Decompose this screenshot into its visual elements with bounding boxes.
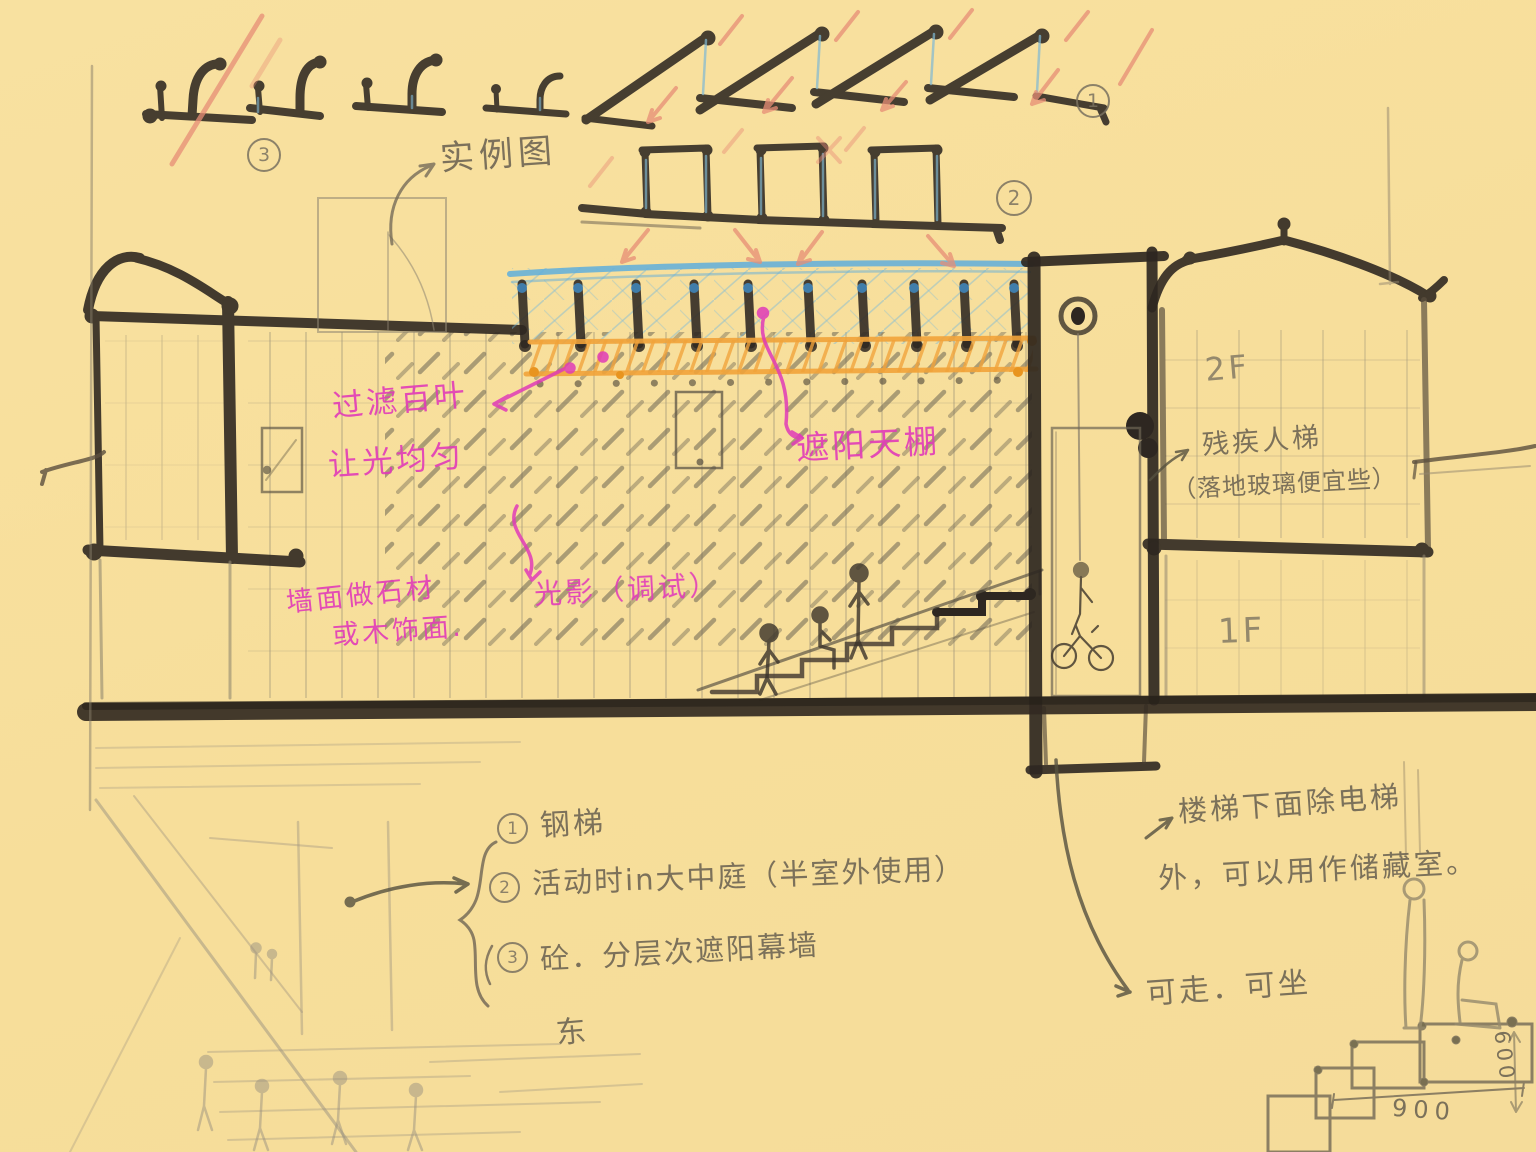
example-note-arrow: [391, 164, 434, 244]
clerestory-roof-sketch: [582, 143, 1002, 240]
pulley-icon: [1061, 299, 1095, 560]
sawtooth-roof-sketch: [585, 25, 1106, 126]
accessible-lift-note-line1: 残疾人梯: [1201, 424, 1323, 459]
list-marker-1: 1: [497, 813, 528, 844]
list-marker-2: 2: [489, 872, 520, 903]
detail-marker-3: 3: [247, 138, 281, 172]
floor-label-2f: 2F: [1204, 350, 1251, 386]
corner-figure: [1404, 879, 1500, 1028]
detail-marker-2: 2: [996, 180, 1032, 216]
plan-thumbnail-sketch: [318, 198, 446, 332]
canopy-note: 遮阳天棚: [795, 424, 941, 464]
sketch-page: 3 1 2 实例图 过滤百叶 让光均匀 遮阳天棚 墙面做石材 或木饰面. 光影（…: [0, 0, 1536, 1152]
dimension-600: 600: [1490, 1029, 1517, 1083]
bicycle-icon: [1052, 563, 1113, 670]
list-brace: [460, 842, 496, 1006]
stray-glyph: 东: [555, 1017, 590, 1050]
street-figure: [198, 944, 422, 1151]
list-item-1: 钢梯: [539, 808, 606, 841]
example-note: 实例图: [439, 134, 558, 176]
dimension-900: 900: [1391, 1096, 1456, 1124]
right-building: [1147, 108, 1535, 696]
list-marker-3: 3: [497, 942, 528, 973]
floor-label-1f: 1F: [1217, 613, 1265, 649]
louver-note-line2: 让光均匀: [327, 441, 465, 481]
detail-marker-1: 1: [1076, 84, 1110, 118]
elevator-shaft: [1026, 252, 1164, 772]
eave-hook-detail-sketch: [143, 54, 566, 123]
